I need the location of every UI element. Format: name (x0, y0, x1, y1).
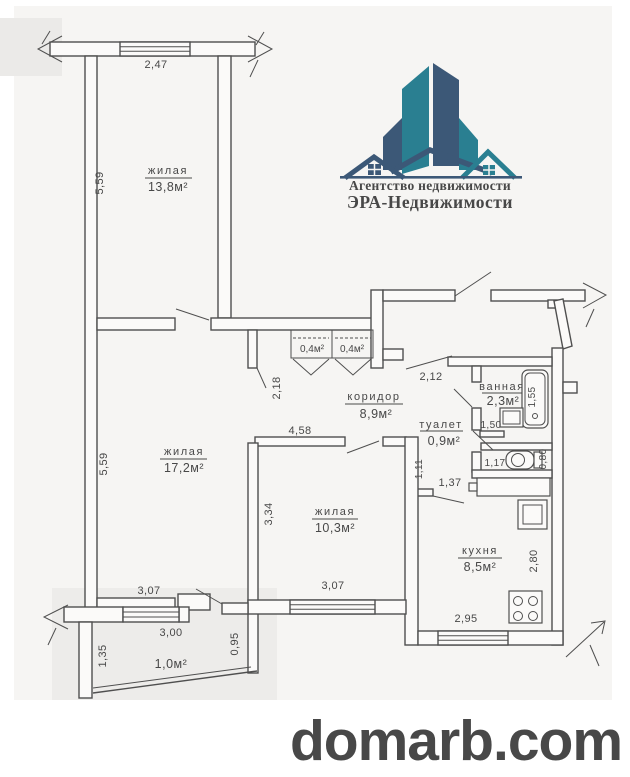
dim-kitchen-height: 2,80 (528, 549, 540, 572)
window-living3 (290, 600, 375, 614)
label-kitchen-area: 8,5м² (464, 560, 497, 574)
toilet-fixture (506, 451, 542, 469)
floorplan-svg: жилая 13,8м² жилая 17,2м² жилая 10,3м² к… (0, 0, 630, 777)
logo-agency-line2: ЭРА-Недвижимости (347, 192, 513, 212)
dim-bath-length: 1,55 (527, 386, 538, 407)
dim-living1-width: 2,47 (144, 59, 167, 71)
label-living1-area: 13,8м² (148, 180, 188, 194)
label-balcony-area: 1,0м² (155, 657, 188, 671)
dim-living2-width: 3,07 (137, 585, 160, 597)
label-corridor-name: коридор (347, 391, 400, 403)
label-living2-name: жилая (164, 446, 204, 458)
watermark-text: domarb.com (290, 709, 622, 773)
dim-hall-entry: 2,12 (419, 371, 442, 383)
label-corridor-area: 8,9м² (360, 407, 393, 421)
window-balcony (123, 607, 179, 622)
dim-corridor-opening: 2,18 (271, 376, 283, 399)
dim-balcony-right: 0,95 (229, 632, 241, 655)
kitchen-counter (469, 478, 550, 496)
label-living2-area: 17,2м² (164, 461, 204, 475)
dim-kitchen-width: 2,95 (454, 613, 477, 625)
window-kitchen (438, 631, 508, 645)
dim-living3-width: 3,07 (321, 580, 344, 592)
dim-toilet-depth: 0,80 (538, 448, 549, 469)
dim-living3-height: 3,34 (263, 502, 275, 525)
label-toilet-area: 0,9м² (428, 434, 461, 448)
label-bathroom-area: 2,3м² (487, 394, 520, 408)
dim-bath-width: 1,50 (480, 420, 501, 431)
dim-balcony-left: 1,35 (97, 644, 109, 667)
label-closet1-area: 0,4м² (300, 344, 325, 355)
stove (509, 591, 542, 623)
kitchen-sink (518, 500, 547, 529)
label-bathroom-name: ванная (479, 381, 525, 393)
dim-living1-height: 5,59 (94, 171, 106, 194)
dim-toilet-width: 1,17 (484, 458, 505, 469)
bath-sink (500, 408, 523, 427)
scanned-floorplan-page: жилая 13,8м² жилая 17,2м² жилая 10,3м² к… (0, 0, 630, 777)
label-closet2-area: 0,4м² (340, 344, 365, 355)
dim-hall-width: 1,11 (414, 459, 425, 479)
window-living1 (120, 42, 190, 56)
logo-agency-line1: Агентство недвижимости (349, 178, 511, 193)
label-toilet-name: туалет (419, 419, 462, 431)
label-living3-area: 10,3м² (315, 521, 355, 535)
label-kitchen-name: кухня (462, 545, 498, 557)
dim-hall-length: 1,37 (438, 477, 461, 489)
dim-balcony-width: 3,00 (159, 627, 182, 639)
label-living1-name: жилая (148, 165, 188, 177)
dim-living3-top: 4,58 (288, 425, 311, 437)
label-living3-name: жилая (315, 506, 355, 518)
dim-living2-height: 5,59 (98, 452, 110, 475)
